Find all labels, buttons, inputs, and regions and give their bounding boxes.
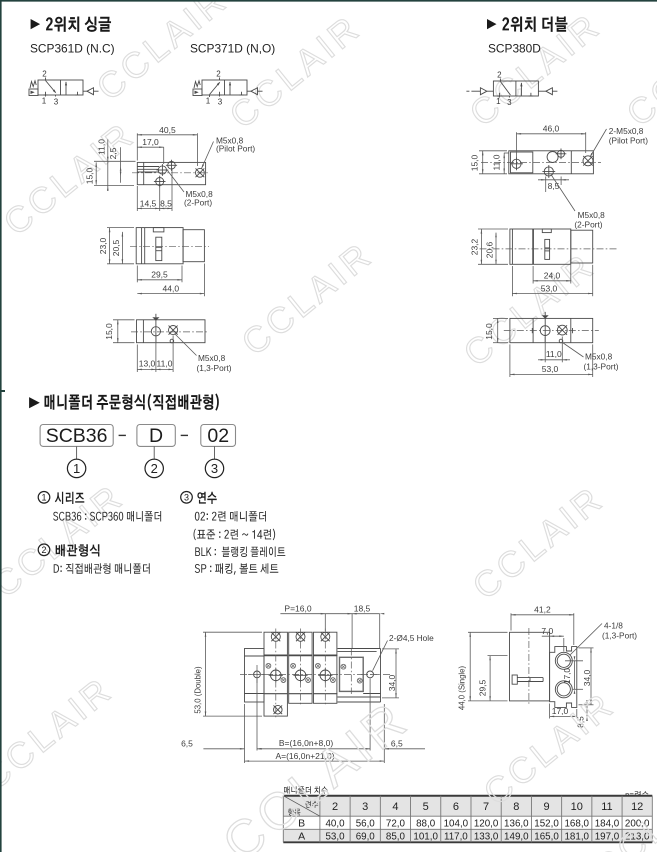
svg-text:53,0: 53,0 <box>542 364 559 374</box>
svg-text:69,0: 69,0 <box>356 832 376 843</box>
svg-text:2: 2 <box>216 70 221 79</box>
svg-text:101,0: 101,0 <box>413 832 438 843</box>
svg-text:3: 3 <box>54 98 59 107</box>
svg-text:181,0: 181,0 <box>564 832 589 843</box>
svg-text:3: 3 <box>507 98 512 107</box>
svg-text:53,0: 53,0 <box>325 832 345 843</box>
svg-text:149,0: 149,0 <box>504 832 529 843</box>
svg-text:M5x0,8: M5x0,8 <box>585 352 613 362</box>
svg-text:1: 1 <box>73 461 80 476</box>
svg-text:5: 5 <box>423 801 429 813</box>
svg-text:15,0: 15,0 <box>484 323 494 340</box>
svg-text:7: 7 <box>483 801 489 813</box>
svg-text:3: 3 <box>211 461 218 476</box>
svg-text:88,0: 88,0 <box>416 819 436 830</box>
svg-text:44,0 (Single): 44,0 (Single) <box>457 665 466 710</box>
svg-text:133,0: 133,0 <box>474 832 499 843</box>
svg-text:M5x0,8: M5x0,8 <box>578 210 606 220</box>
svg-text:2,5: 2,5 <box>108 147 118 159</box>
svg-text:15,0: 15,0 <box>469 154 479 171</box>
svg-text:11,0: 11,0 <box>492 154 502 170</box>
svg-text:40,5: 40,5 <box>159 125 176 135</box>
svg-text:D: D <box>149 425 163 447</box>
svg-text:40,0: 40,0 <box>325 819 345 830</box>
svg-text:(1,3-Port): (1,3-Port) <box>602 631 637 641</box>
svg-text:(2-Port): (2-Port) <box>574 220 602 230</box>
svg-text:44,0: 44,0 <box>163 284 180 294</box>
svg-text:1: 1 <box>41 493 46 503</box>
svg-text:56,0: 56,0 <box>356 819 376 830</box>
svg-text:29,5: 29,5 <box>151 270 168 280</box>
svg-text:SCB36: SCB36 <box>46 425 108 447</box>
svg-text:7,0: 7,0 <box>541 626 553 636</box>
svg-text:2: 2 <box>41 545 46 555</box>
svg-text:53,0: 53,0 <box>541 283 558 293</box>
svg-text:29,5: 29,5 <box>477 679 487 696</box>
svg-text:20,6: 20,6 <box>484 241 494 258</box>
svg-text:34,0: 34,0 <box>387 674 397 691</box>
svg-text:46,0: 46,0 <box>543 123 560 133</box>
svg-text:165,0: 165,0 <box>534 832 559 843</box>
svg-text:3: 3 <box>218 98 223 107</box>
svg-text:23,0: 23,0 <box>98 237 108 254</box>
svg-text:3: 3 <box>362 801 368 813</box>
svg-text:M5x0,8: M5x0,8 <box>198 353 226 363</box>
svg-text:23,2: 23,2 <box>470 238 480 255</box>
svg-text:2: 2 <box>42 70 47 79</box>
svg-text:11,0: 11,0 <box>97 139 107 155</box>
svg-text:(Pilot Port): (Pilot Port) <box>609 136 648 146</box>
svg-text:11,0: 11,0 <box>157 359 173 369</box>
svg-text:(Pilot Port): (Pilot Port) <box>216 143 255 153</box>
svg-text:(2-Port): (2-Port) <box>184 198 212 208</box>
svg-text:10: 10 <box>571 801 583 813</box>
svg-text:17,0: 17,0 <box>563 668 572 684</box>
svg-text:SCP371D (N,O): SCP371D (N,O) <box>190 41 275 55</box>
svg-text:4-1/8: 4-1/8 <box>604 620 623 630</box>
svg-text:136,0: 136,0 <box>504 819 529 830</box>
svg-text:152,0: 152,0 <box>534 819 559 830</box>
svg-text:2-M5x0,8: 2-M5x0,8 <box>609 126 644 136</box>
svg-text:168,0: 168,0 <box>564 819 589 830</box>
svg-text:(1,3-Port): (1,3-Port) <box>584 362 619 372</box>
svg-text:P=16,0: P=16,0 <box>284 603 311 613</box>
svg-text:17,0: 17,0 <box>142 137 159 147</box>
svg-text:1: 1 <box>42 97 47 106</box>
svg-text:8,5: 8,5 <box>160 198 172 208</box>
svg-text:1: 1 <box>206 97 211 106</box>
svg-text:18,5: 18,5 <box>354 603 371 613</box>
svg-text:117,0: 117,0 <box>444 832 468 843</box>
svg-text:24,0: 24,0 <box>544 271 561 281</box>
svg-text:15,0: 15,0 <box>104 323 114 340</box>
svg-text:(1,3-Port): (1,3-Port) <box>197 363 232 373</box>
svg-text:SCP361D (N.C): SCP361D (N.C) <box>30 41 115 55</box>
svg-text:34,0: 34,0 <box>582 669 592 686</box>
svg-text:8,5: 8,5 <box>548 181 560 191</box>
svg-text:SCP380D: SCP380D <box>488 41 541 55</box>
svg-text:6: 6 <box>453 801 459 813</box>
svg-text:6,5: 6,5 <box>181 738 193 748</box>
svg-text:11,0: 11,0 <box>546 349 562 359</box>
svg-text:2: 2 <box>151 461 158 476</box>
svg-text:11: 11 <box>601 801 612 813</box>
svg-text:104,0: 104,0 <box>444 819 469 830</box>
svg-text:184,0: 184,0 <box>595 819 620 830</box>
svg-text:1: 1 <box>496 97 501 106</box>
svg-text:120,0: 120,0 <box>474 819 499 830</box>
svg-text:85,0: 85,0 <box>386 832 406 843</box>
svg-text:3: 3 <box>184 493 189 503</box>
svg-text:13,0: 13,0 <box>139 359 156 369</box>
svg-text:20,5: 20,5 <box>111 239 121 256</box>
svg-text:15,0: 15,0 <box>85 167 95 184</box>
svg-text:14,5: 14,5 <box>140 198 157 208</box>
svg-text:9: 9 <box>543 801 549 813</box>
svg-text:41,2: 41,2 <box>534 604 551 614</box>
svg-text:02: 02 <box>207 425 229 447</box>
svg-text:53,0 (Double): 53,0 (Double) <box>194 666 203 714</box>
svg-text:72,0: 72,0 <box>386 819 406 830</box>
svg-text:2-Ø4,5 Hole: 2-Ø4,5 Hole <box>389 633 434 643</box>
svg-text:4: 4 <box>392 801 398 813</box>
svg-text:2: 2 <box>497 71 502 80</box>
